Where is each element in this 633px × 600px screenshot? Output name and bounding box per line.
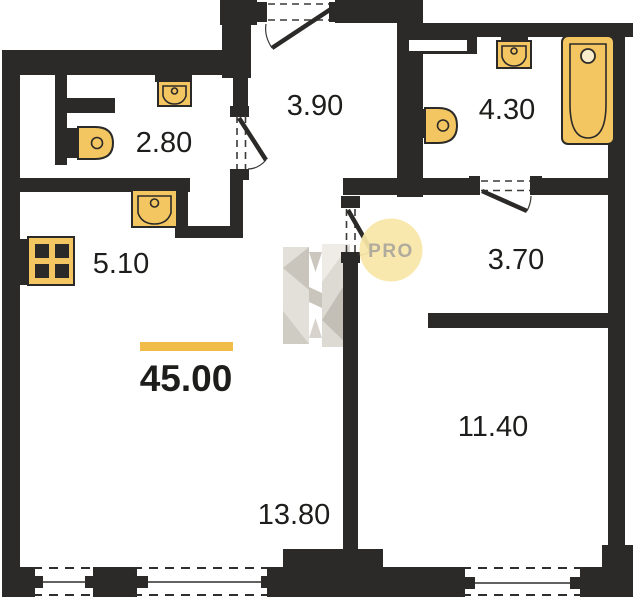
- pro-badge-label: PRO: [368, 241, 414, 262]
- kitchen-sink-icon: [132, 190, 177, 227]
- total-area-label: 45.00: [140, 358, 233, 399]
- stove-icon: [18, 237, 74, 285]
- bathroom-sink-icon: [497, 34, 531, 68]
- wc-door-swing-icon: [237, 116, 266, 169]
- area-label-living-room: 13.80: [258, 499, 331, 531]
- area-label-wc: 2.80: [136, 127, 192, 159]
- area-label-kitchen: 5.10: [93, 248, 149, 280]
- bathroom-door-swing-icon: [481, 181, 531, 211]
- floor-plan: PRO 2.80 3.90 4.30 5.10 3.70 11.40 13.80…: [0, 0, 633, 600]
- area-label-bathroom: 4.30: [479, 94, 535, 126]
- room-area-labels: 2.80 3.90 4.30 5.10 3.70 11.40 13.80 45.…: [93, 90, 544, 531]
- watermark-letter-icon: [283, 244, 350, 347]
- bathroom-toilet-icon: [407, 108, 457, 143]
- wc-toilet-icon: [62, 127, 113, 159]
- wc-sink-icon: [155, 73, 192, 106]
- area-label-bedroom: 11.40: [458, 411, 528, 443]
- window-icon: [133, 568, 267, 595]
- vent-niche: [409, 40, 467, 51]
- window-icon: [462, 568, 583, 595]
- floor-plan-drawing: PRO 2.80 3.90 4.30 5.10 3.70 11.40 13.80…: [0, 0, 633, 600]
- area-label-entry-hall: 3.90: [287, 90, 343, 122]
- entrance-door-swing-icon: [266, 4, 331, 48]
- area-label-inner-hall: 3.70: [488, 244, 544, 276]
- total-area-underline: [140, 342, 233, 351]
- bathtub-icon: [562, 36, 614, 144]
